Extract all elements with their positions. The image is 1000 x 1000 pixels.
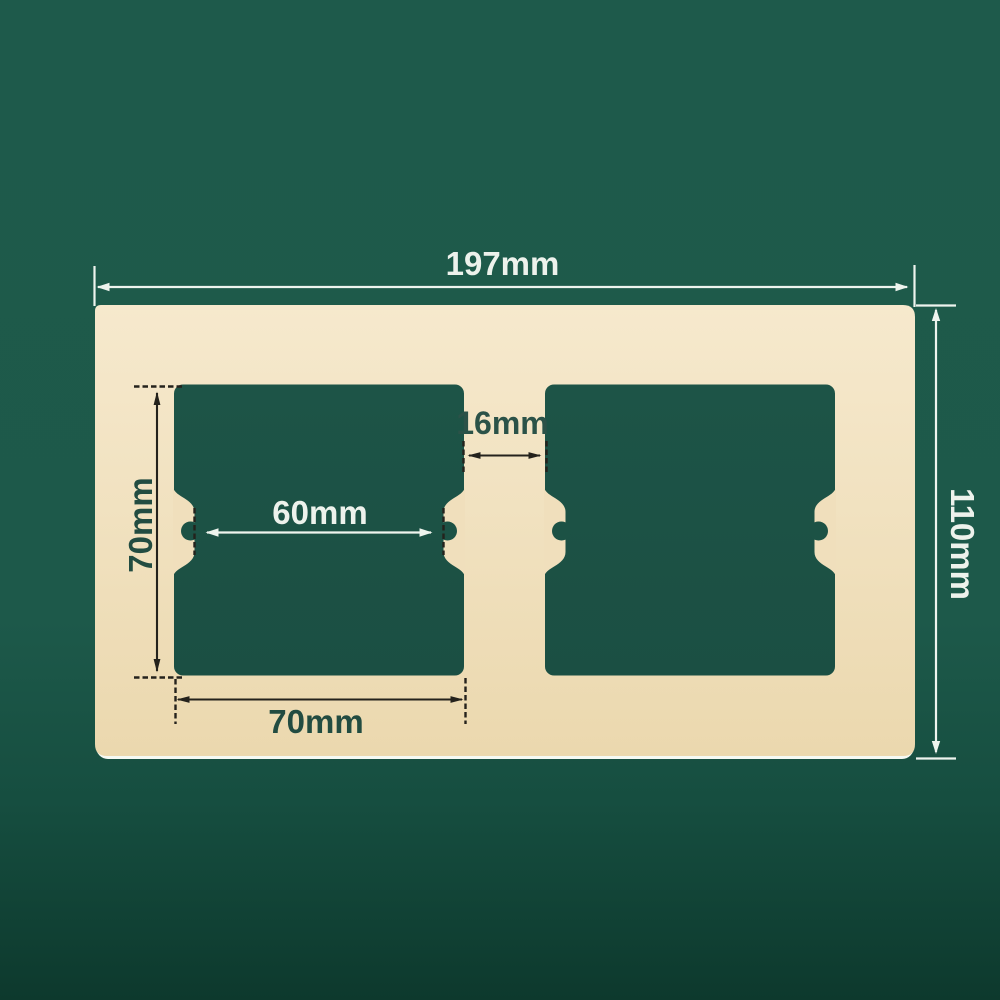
svg-text:16mm: 16mm <box>456 405 549 441</box>
svg-text:70mm: 70mm <box>122 477 159 572</box>
svg-text:70mm: 70mm <box>268 703 363 740</box>
svg-text:197mm: 197mm <box>446 245 560 282</box>
svg-text:110mm: 110mm <box>944 488 981 600</box>
svg-text:60mm: 60mm <box>272 494 367 531</box>
